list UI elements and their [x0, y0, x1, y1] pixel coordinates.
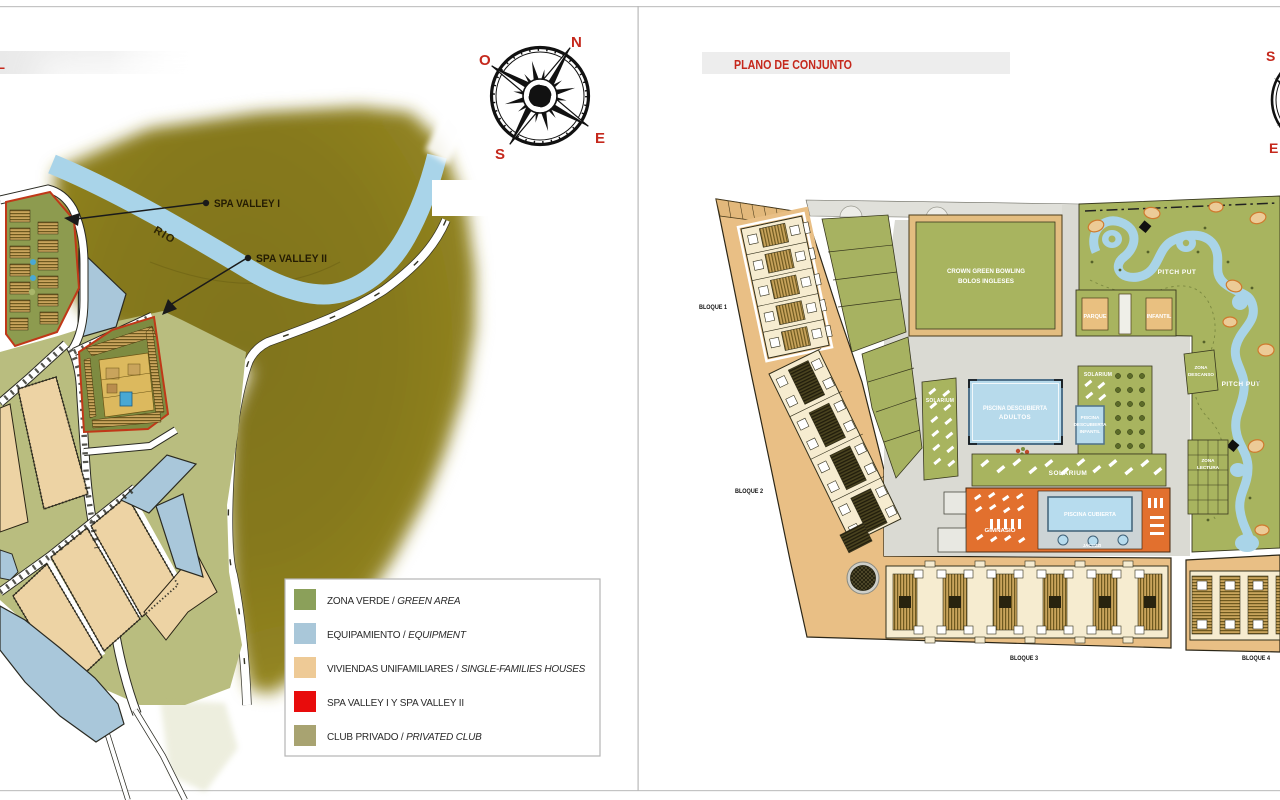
- svg-text:BLOQUE 1: BLOQUE 1: [699, 305, 728, 311]
- svg-text:BLOQUE 2: BLOQUE 2: [735, 489, 764, 495]
- svg-text:INFANTIL: INFANTIL: [1080, 429, 1101, 434]
- svg-text:N: N: [571, 34, 582, 51]
- svg-text:CLUB PRIVADO / PRIVATED CLUB: CLUB PRIVADO / PRIVATED CLUB: [327, 732, 482, 743]
- svg-text:PITCH PUT: PITCH PUT: [1222, 381, 1261, 388]
- svg-text:PISCINA CUBIERTA: PISCINA CUBIERTA: [1064, 512, 1117, 518]
- svg-text:E: E: [595, 130, 605, 147]
- svg-text:BOLOS INGLESES: BOLOS INGLESES: [958, 278, 1014, 285]
- svg-text:L: L: [0, 57, 5, 72]
- svg-text:CROWN GREEN BOWLING: CROWN GREEN BOWLING: [947, 268, 1025, 275]
- svg-text:E: E: [1269, 140, 1278, 156]
- svg-text:DESCUBIERTA: DESCUBIERTA: [1074, 422, 1108, 427]
- svg-text:VIVIENDAS UNIFAMILIARES / SING: VIVIENDAS UNIFAMILIARES / SINGLE-FAMILIE…: [327, 664, 586, 675]
- svg-text:ADULTOS: ADULTOS: [999, 414, 1031, 421]
- svg-text:SPA VALLEY I: SPA VALLEY I: [214, 198, 280, 210]
- svg-text:SPA VALLEY II: SPA VALLEY II: [256, 253, 327, 265]
- svg-text:SPA VALLEY I Y SPA VALLEY II: SPA VALLEY I Y SPA VALLEY II: [327, 698, 464, 709]
- svg-text:EQUIPAMIENTO / EQUIPMENT: EQUIPAMIENTO / EQUIPMENT: [327, 630, 467, 641]
- svg-text:S: S: [1266, 48, 1275, 64]
- svg-text:DESCANSO: DESCANSO: [1188, 372, 1214, 377]
- svg-text:SOLARIUM: SOLARIUM: [1084, 372, 1112, 378]
- svg-text:ZONA: ZONA: [1201, 458, 1215, 463]
- svg-text:S: S: [495, 146, 505, 163]
- svg-text:BLOQUE 4: BLOQUE 4: [1242, 656, 1271, 662]
- svg-text:SOLARIUM: SOLARIUM: [926, 398, 954, 404]
- svg-text:ZONA: ZONA: [1194, 365, 1208, 370]
- svg-text:PITCH PUT: PITCH PUT: [1158, 269, 1197, 276]
- svg-text:O: O: [479, 52, 491, 69]
- svg-text:GIMNASIO: GIMNASIO: [985, 528, 1017, 534]
- svg-text:PISCINA DESCUBIERTA: PISCINA DESCUBIERTA: [983, 405, 1047, 412]
- svg-text:LECTURA: LECTURA: [1197, 465, 1220, 470]
- svg-text:JACUZZI: JACUZZI: [1083, 543, 1102, 548]
- svg-text:PARQUE: PARQUE: [1083, 314, 1106, 320]
- svg-text:SOLARIUM: SOLARIUM: [1049, 470, 1088, 477]
- svg-text:BLOQUE 3: BLOQUE 3: [1010, 656, 1039, 662]
- svg-text:INFANTIL: INFANTIL: [1147, 314, 1172, 320]
- svg-text:ZONA VERDE / GREEN AREA: ZONA VERDE / GREEN AREA: [327, 596, 461, 607]
- svg-text:PISCINA: PISCINA: [1081, 415, 1100, 420]
- svg-text:PLANO DE CONJUNTO: PLANO DE CONJUNTO: [734, 58, 852, 72]
